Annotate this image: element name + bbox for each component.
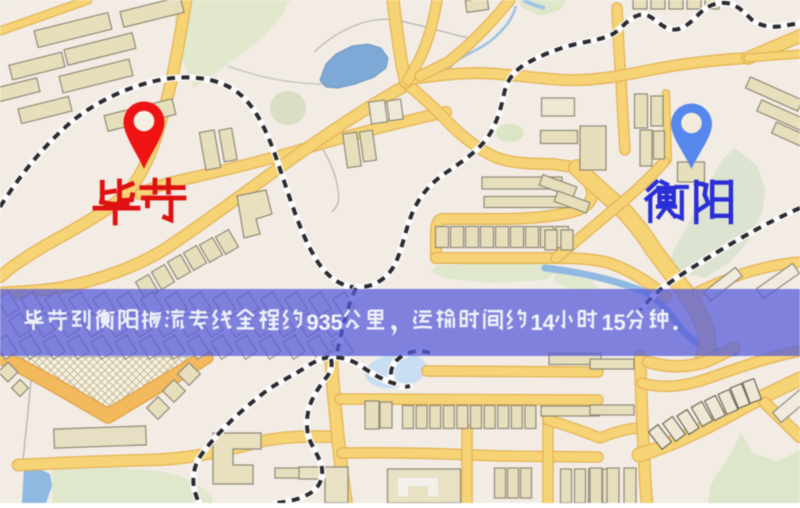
- svg-text:1: 1: [531, 310, 543, 335]
- svg-text:9: 9: [307, 310, 319, 335]
- svg-text:5: 5: [331, 310, 343, 335]
- svg-text:3: 3: [319, 310, 331, 335]
- svg-text:1: 1: [602, 310, 614, 335]
- svg-text:4: 4: [543, 310, 556, 335]
- svg-text:5: 5: [614, 310, 626, 335]
